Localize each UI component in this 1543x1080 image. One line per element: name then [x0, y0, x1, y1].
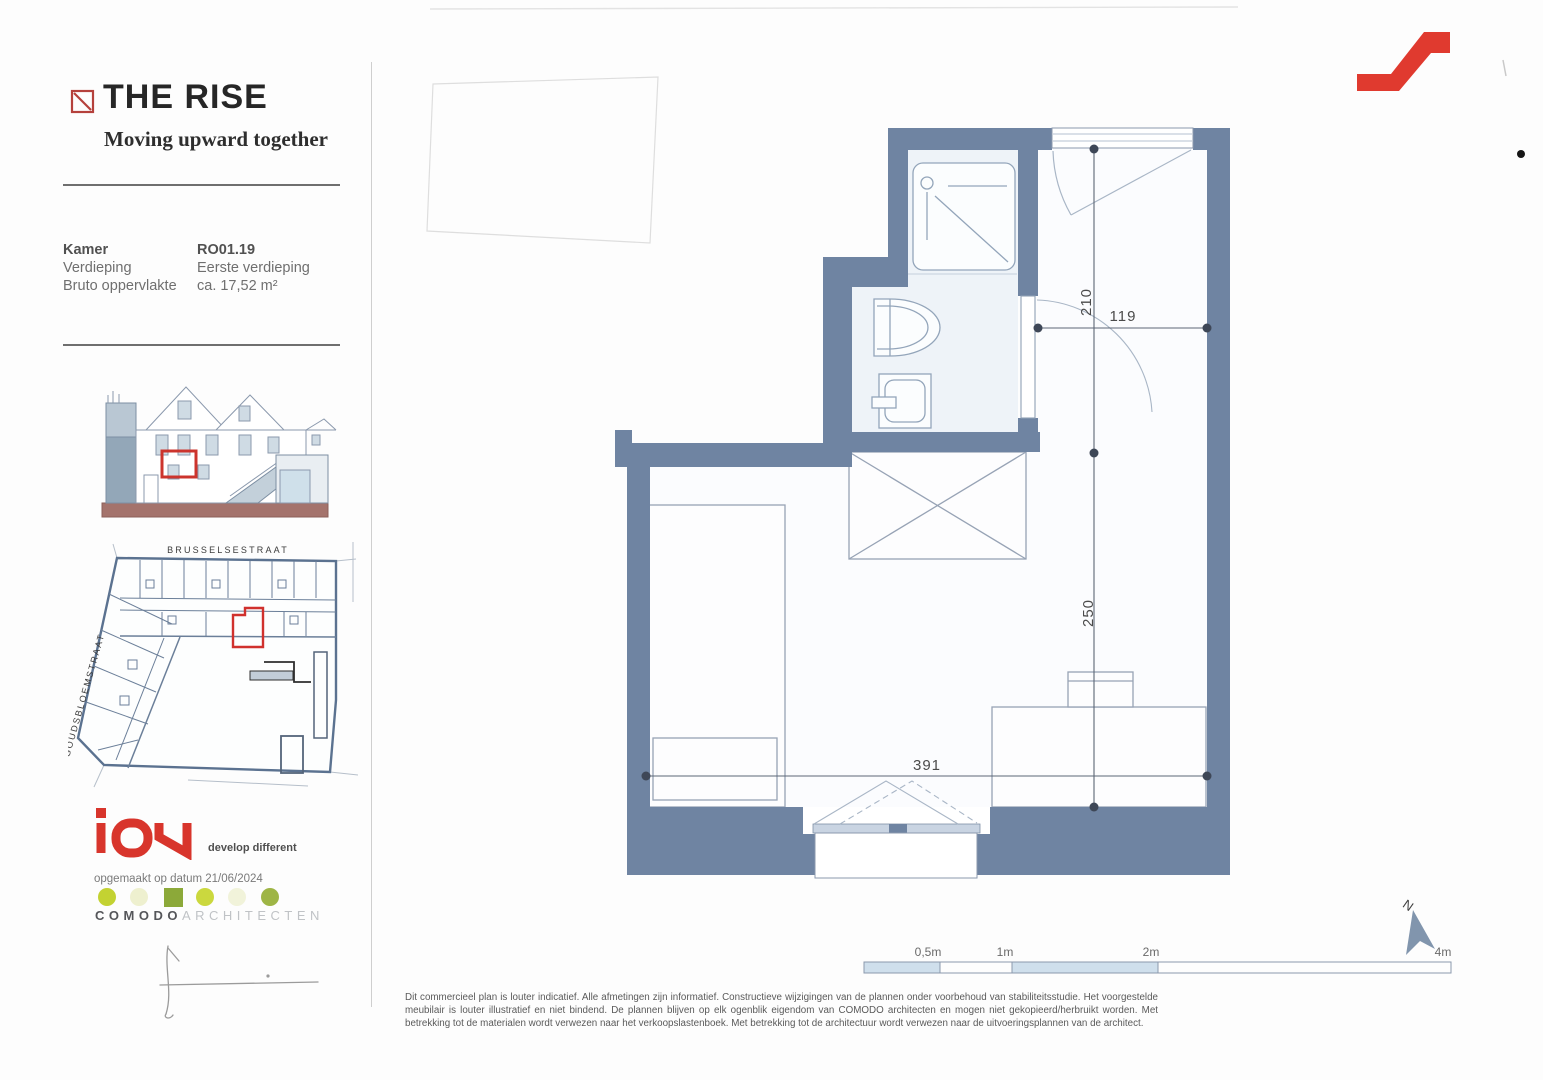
entry-window	[1052, 128, 1193, 148]
desk	[992, 707, 1206, 807]
dim-label-210: 210	[1078, 288, 1095, 316]
brand-swoosh-icon	[1357, 32, 1450, 91]
scale-label-2m: 2m	[1143, 945, 1160, 959]
scale-bar: 0,5m 1m 2m 4m	[864, 945, 1451, 973]
dim-label-250: 250	[1080, 599, 1097, 627]
north-arrow-icon	[1406, 910, 1435, 955]
scale-label-1m: 1m	[997, 945, 1014, 959]
floor-plan-sheet: THE RISE Moving upward together Kamer RO…	[0, 0, 1543, 1080]
bed-pillow	[653, 738, 777, 800]
north-label: N	[1400, 896, 1416, 914]
scale-label-05m: 0,5m	[915, 945, 942, 959]
ink-dot	[1517, 150, 1525, 158]
washbasin-tap	[872, 397, 896, 408]
scale-label-4m: 4m	[1435, 945, 1452, 959]
north-arrow: N	[1400, 896, 1435, 955]
dim-label-119: 119	[1110, 308, 1137, 325]
dim-label-391: 391	[913, 757, 941, 774]
floor-plan-drawing: 210 119 250 391 0,5m 1m 2m 4m N	[0, 0, 1543, 1080]
chair	[1068, 672, 1133, 707]
